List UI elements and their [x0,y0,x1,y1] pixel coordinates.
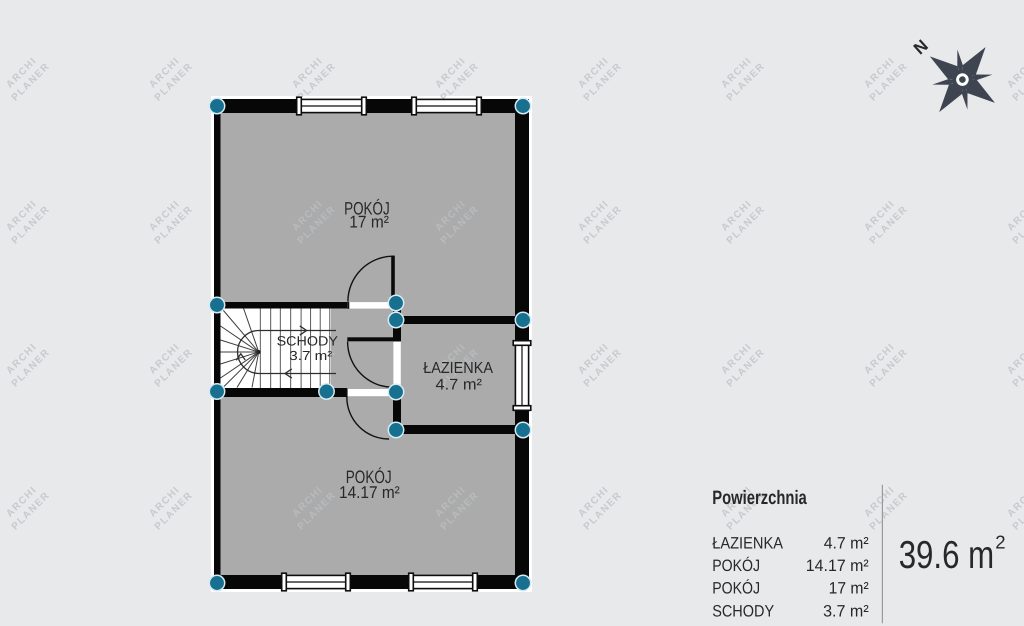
svg-text:Powierzchnia: Powierzchnia [712,487,807,509]
svg-text:POKÓJ: POKÓJ [712,556,760,575]
svg-text:2: 2 [995,531,1005,552]
svg-text:3.7 m²: 3.7 m² [289,348,333,363]
svg-text:17 m²: 17 m² [349,213,389,232]
svg-text:14.17 m²: 14.17 m² [806,557,869,575]
svg-text:ŁAZIENKA: ŁAZIENKA [423,360,493,377]
svg-text:3.7 m²: 3.7 m² [823,602,869,620]
svg-text:17 m²: 17 m² [829,580,870,598]
svg-text:SCHODY: SCHODY [277,334,338,349]
svg-text:SCHODY: SCHODY [712,602,774,620]
svg-text:ŁAZIENKA: ŁAZIENKA [712,534,783,552]
svg-text:POKÓJ: POKÓJ [712,579,760,598]
svg-text:14.17 m²: 14.17 m² [339,483,400,502]
svg-text:4.7 m²: 4.7 m² [824,534,869,552]
svg-text:39.6 m: 39.6 m [899,534,995,577]
svg-text:4.7 m²: 4.7 m² [436,377,483,394]
